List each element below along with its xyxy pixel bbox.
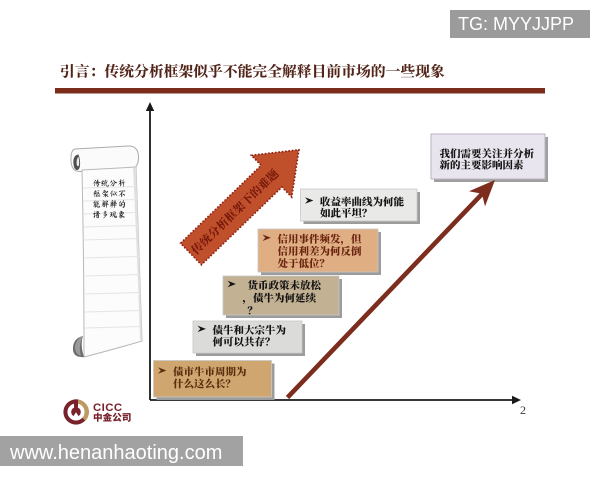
svg-text:2: 2 — [520, 403, 526, 417]
svg-text:www.henanhaoting.com: www.henanhaoting.com — [9, 442, 222, 464]
svg-text:TG: MYYJJPP: TG: MYYJJPP — [458, 14, 574, 34]
svg-text:CICC: CICC — [93, 402, 122, 414]
